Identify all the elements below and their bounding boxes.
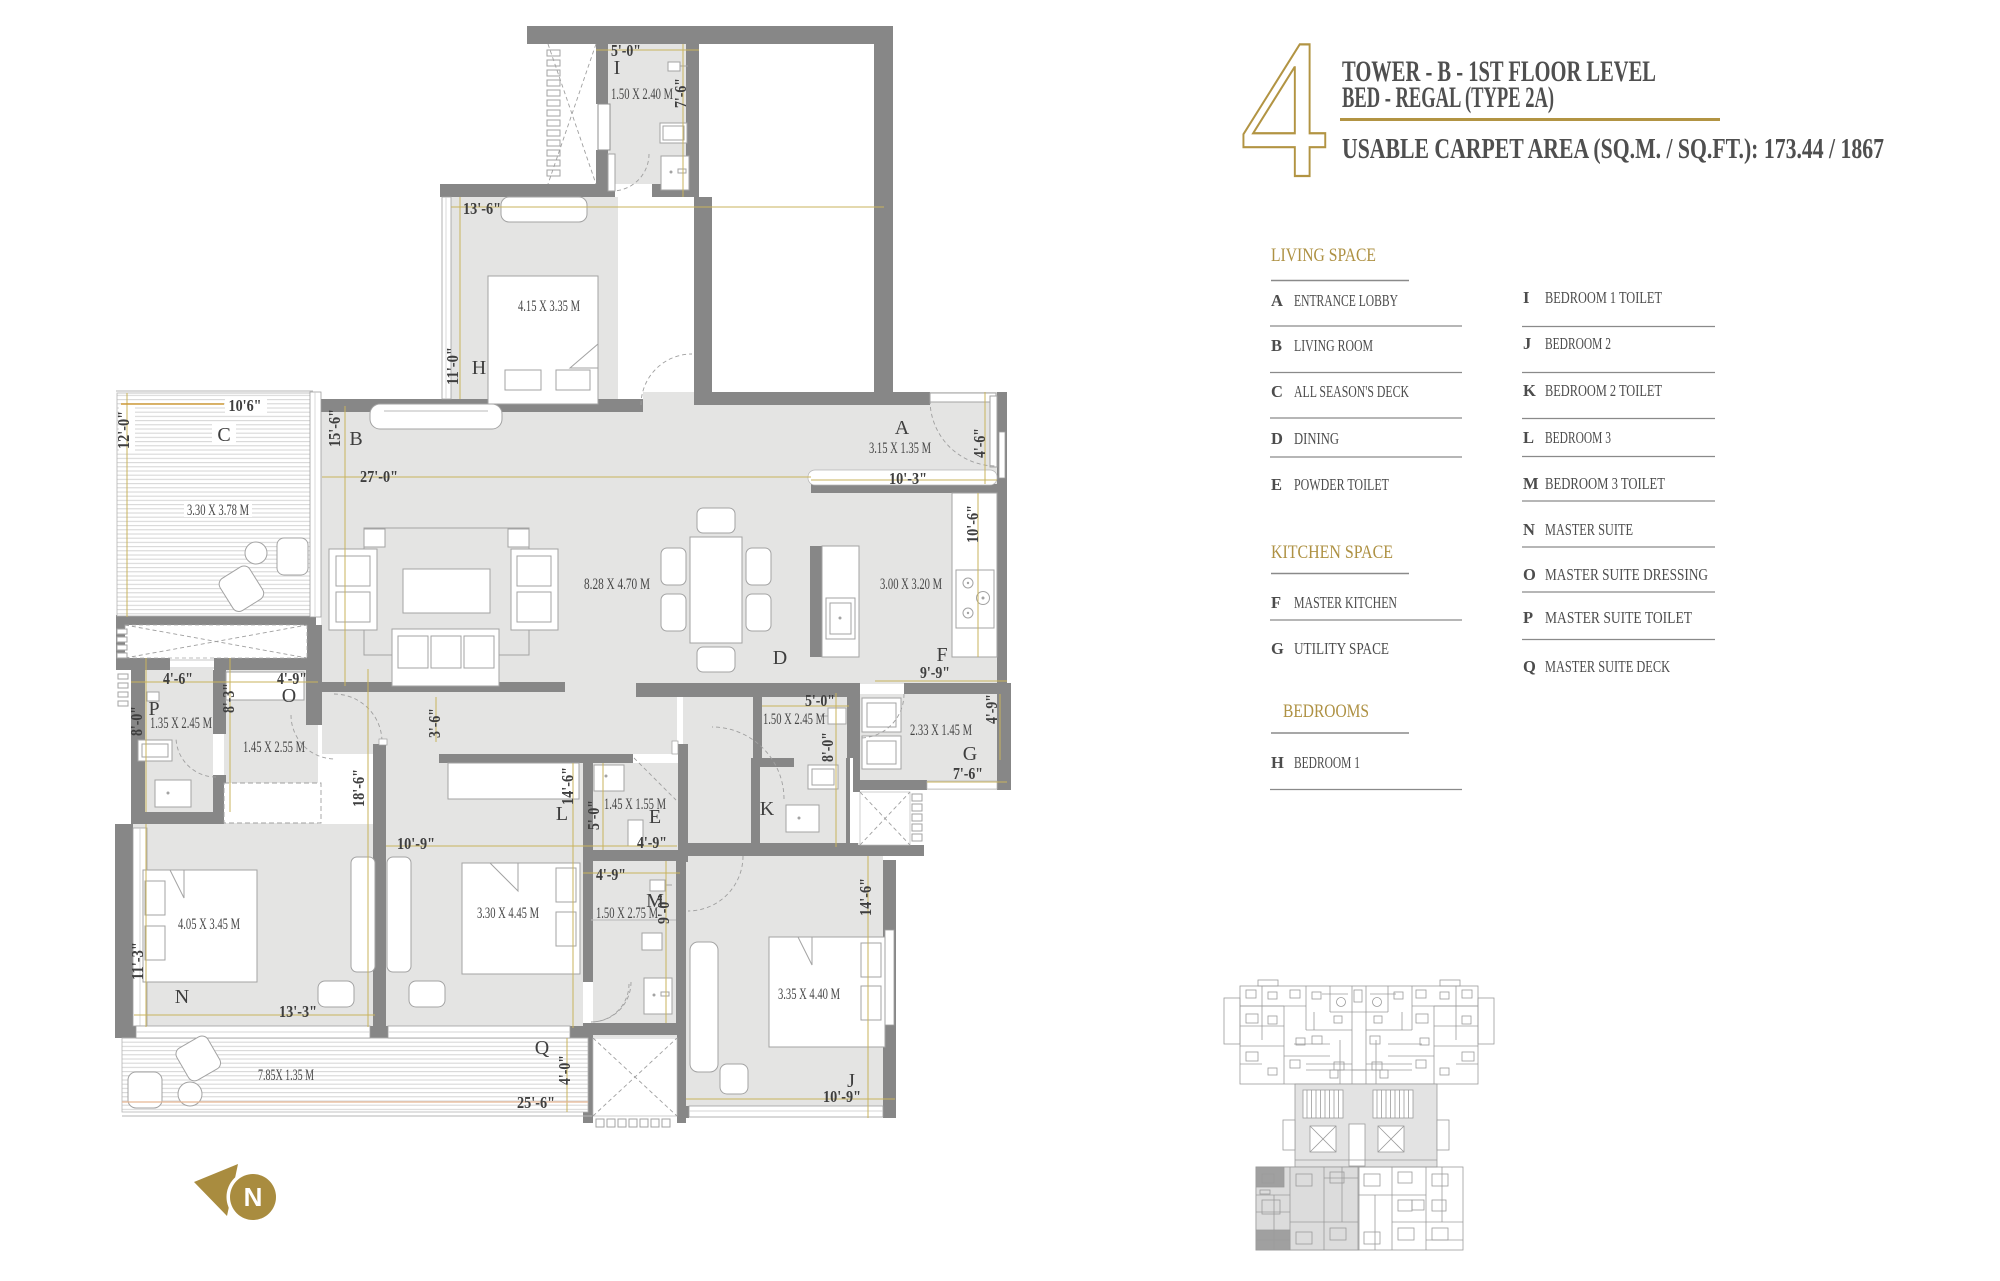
svg-text:13'-3": 13'-3" (279, 1002, 317, 1021)
svg-text:L: L (1523, 428, 1534, 447)
svg-text:BEDROOM 1: BEDROOM 1 (1294, 753, 1360, 772)
svg-text:ALL SEASON'S DECK: ALL SEASON'S DECK (1294, 382, 1409, 401)
svg-text:3.35 X 4.40 M: 3.35 X 4.40 M (778, 986, 840, 1003)
svg-text:4.05 X 3.45 M: 4.05 X 3.45 M (178, 916, 240, 933)
svg-text:N: N (244, 1182, 263, 1212)
svg-text:Q: Q (535, 1037, 550, 1059)
svg-text:H: H (1271, 753, 1284, 772)
svg-text:J: J (1523, 334, 1531, 353)
svg-text:F: F (1271, 593, 1281, 612)
svg-text:1.45 X 1.55 M: 1.45 X 1.55 M (604, 796, 666, 813)
svg-text:O: O (282, 685, 296, 707)
svg-text:DINING: DINING (1294, 429, 1339, 448)
svg-text:10'-3": 10'-3" (889, 469, 927, 488)
svg-text:B: B (349, 428, 362, 450)
svg-text:7.85X 1.35 M: 7.85X 1.35 M (258, 1067, 314, 1084)
svg-text:C: C (217, 424, 230, 446)
svg-text:10'-6": 10'-6" (963, 505, 982, 543)
svg-text:BEDROOM 3 TOILET: BEDROOM 3 TOILET (1545, 474, 1665, 493)
svg-text:C: C (1271, 382, 1283, 401)
svg-text:18'-6": 18'-6" (349, 769, 368, 807)
svg-text:A: A (895, 417, 910, 439)
svg-text:8.28 X 4.70 M: 8.28 X 4.70 M (584, 576, 650, 593)
svg-text:N: N (175, 986, 189, 1008)
svg-text:3.30 X 3.78 M: 3.30 X 3.78 M (187, 502, 249, 519)
svg-text:ENTRANCE LOBBY: ENTRANCE LOBBY (1294, 291, 1398, 310)
svg-text:4'-6": 4'-6" (163, 669, 193, 688)
svg-text:1.50 X 2.40 M: 1.50 X 2.40 M (611, 86, 673, 103)
svg-text:8'-0": 8'-0" (127, 706, 146, 736)
svg-text:1.50 X 2.75 M: 1.50 X 2.75 M (596, 905, 658, 922)
svg-text:I: I (1523, 288, 1529, 307)
svg-text:5'-0": 5'-0" (805, 691, 835, 710)
svg-text:A: A (1271, 291, 1283, 310)
svg-text:K: K (1523, 381, 1536, 400)
svg-text:7'-6": 7'-6" (671, 78, 690, 108)
svg-text:B: B (1271, 336, 1282, 355)
svg-text:UTILITY SPACE: UTILITY SPACE (1294, 639, 1389, 658)
svg-text:25'-6": 25'-6" (517, 1093, 555, 1112)
svg-text:KITCHEN SPACE: KITCHEN SPACE (1271, 542, 1393, 563)
svg-text:4'-9": 4'-9" (637, 833, 667, 852)
svg-text:8'-3": 8'-3" (219, 683, 238, 713)
svg-text:10'-9": 10'-9" (823, 1087, 861, 1106)
svg-text:3.30 X 4.45 M: 3.30 X 4.45 M (477, 905, 539, 922)
svg-text:D: D (773, 647, 787, 669)
svg-text:MASTER KITCHEN: MASTER KITCHEN (1294, 593, 1397, 612)
svg-text:11'-3": 11'-3" (128, 942, 147, 980)
svg-text:1.50 X 2.45 M: 1.50 X 2.45 M (763, 711, 825, 728)
svg-text:4'-0": 4'-0" (555, 1055, 574, 1085)
svg-text:10'6": 10'6" (229, 396, 262, 415)
svg-text:M: M (1523, 474, 1539, 493)
svg-text:G: G (963, 743, 977, 765)
svg-text:POWDER TOILET: POWDER TOILET (1294, 475, 1389, 494)
svg-text:13'-6": 13'-6" (463, 199, 501, 218)
svg-text:D: D (1271, 429, 1283, 448)
svg-text:14'-6": 14'-6" (856, 878, 875, 916)
svg-text:1.35 X 2.45 M: 1.35 X 2.45 M (150, 715, 212, 732)
svg-text:P: P (1523, 608, 1533, 627)
svg-text:3.00 X 3.20 M: 3.00 X 3.20 M (880, 576, 942, 593)
svg-text:O: O (1523, 565, 1536, 584)
svg-text:4: 4 (1240, 0, 1328, 220)
svg-text:11'-0": 11'-0" (443, 347, 462, 385)
svg-text:G: G (1271, 639, 1284, 658)
svg-text:14'-6": 14'-6" (558, 767, 577, 805)
svg-text:L: L (556, 803, 568, 825)
svg-text:4'-9": 4'-9" (982, 694, 1001, 724)
svg-text:1.45 X 2.55 M: 1.45 X 2.55 M (243, 739, 305, 756)
svg-text:10'-9": 10'-9" (397, 834, 435, 853)
svg-text:MASTER SUITE DECK: MASTER SUITE DECK (1545, 657, 1670, 676)
svg-text:7'-6": 7'-6" (953, 764, 983, 783)
svg-text:MASTER SUITE TOILET: MASTER SUITE TOILET (1545, 608, 1692, 627)
svg-text:8'-0": 8'-0" (818, 732, 837, 762)
svg-text:LIVING SPACE: LIVING SPACE (1271, 245, 1376, 266)
svg-text:USABLE CARPET AREA (SQ.M. / SQ: USABLE CARPET AREA (SQ.M. / SQ.FT.): 173… (1342, 133, 1884, 165)
svg-text:N: N (1523, 520, 1535, 539)
svg-text:H: H (472, 357, 486, 379)
svg-text:K: K (760, 798, 775, 820)
svg-text:2.33 X 1.45 M: 2.33 X 1.45 M (910, 722, 972, 739)
svg-text:J: J (847, 1070, 855, 1092)
svg-text:MASTER SUITE: MASTER SUITE (1545, 520, 1633, 539)
svg-text:MASTER SUITE DRESSING: MASTER SUITE DRESSING (1545, 565, 1708, 584)
svg-text:15'-6": 15'-6" (325, 409, 344, 447)
svg-text:E: E (1271, 475, 1282, 494)
svg-text:I: I (614, 57, 621, 79)
svg-text:BEDROOM 3: BEDROOM 3 (1545, 428, 1611, 447)
svg-text:BEDROOMS: BEDROOMS (1283, 701, 1369, 722)
svg-text:27'-0": 27'-0" (360, 467, 398, 486)
svg-text:4.15 X 3.35 M: 4.15 X 3.35 M (518, 298, 580, 315)
svg-text:3.15 X 1.35 M: 3.15 X 1.35 M (869, 440, 931, 457)
svg-text:4'-9": 4'-9" (596, 865, 626, 884)
svg-text:BED - REGAL (TYPE 2A): BED - REGAL (TYPE 2A) (1342, 81, 1554, 114)
svg-text:Q: Q (1523, 657, 1536, 676)
svg-text:12'-0": 12'-0" (114, 411, 133, 449)
svg-text:LIVING ROOM: LIVING ROOM (1294, 336, 1373, 355)
svg-text:BEDROOM 2 TOILET: BEDROOM 2 TOILET (1545, 381, 1662, 400)
svg-text:F: F (936, 644, 947, 666)
svg-text:BEDROOM 2: BEDROOM 2 (1545, 334, 1611, 353)
svg-text:3'-6": 3'-6" (425, 708, 444, 738)
svg-text:BEDROOM 1 TOILET: BEDROOM 1 TOILET (1545, 288, 1662, 307)
svg-text:5'-0": 5'-0" (584, 800, 603, 830)
svg-text:4'-6": 4'-6" (970, 428, 989, 458)
